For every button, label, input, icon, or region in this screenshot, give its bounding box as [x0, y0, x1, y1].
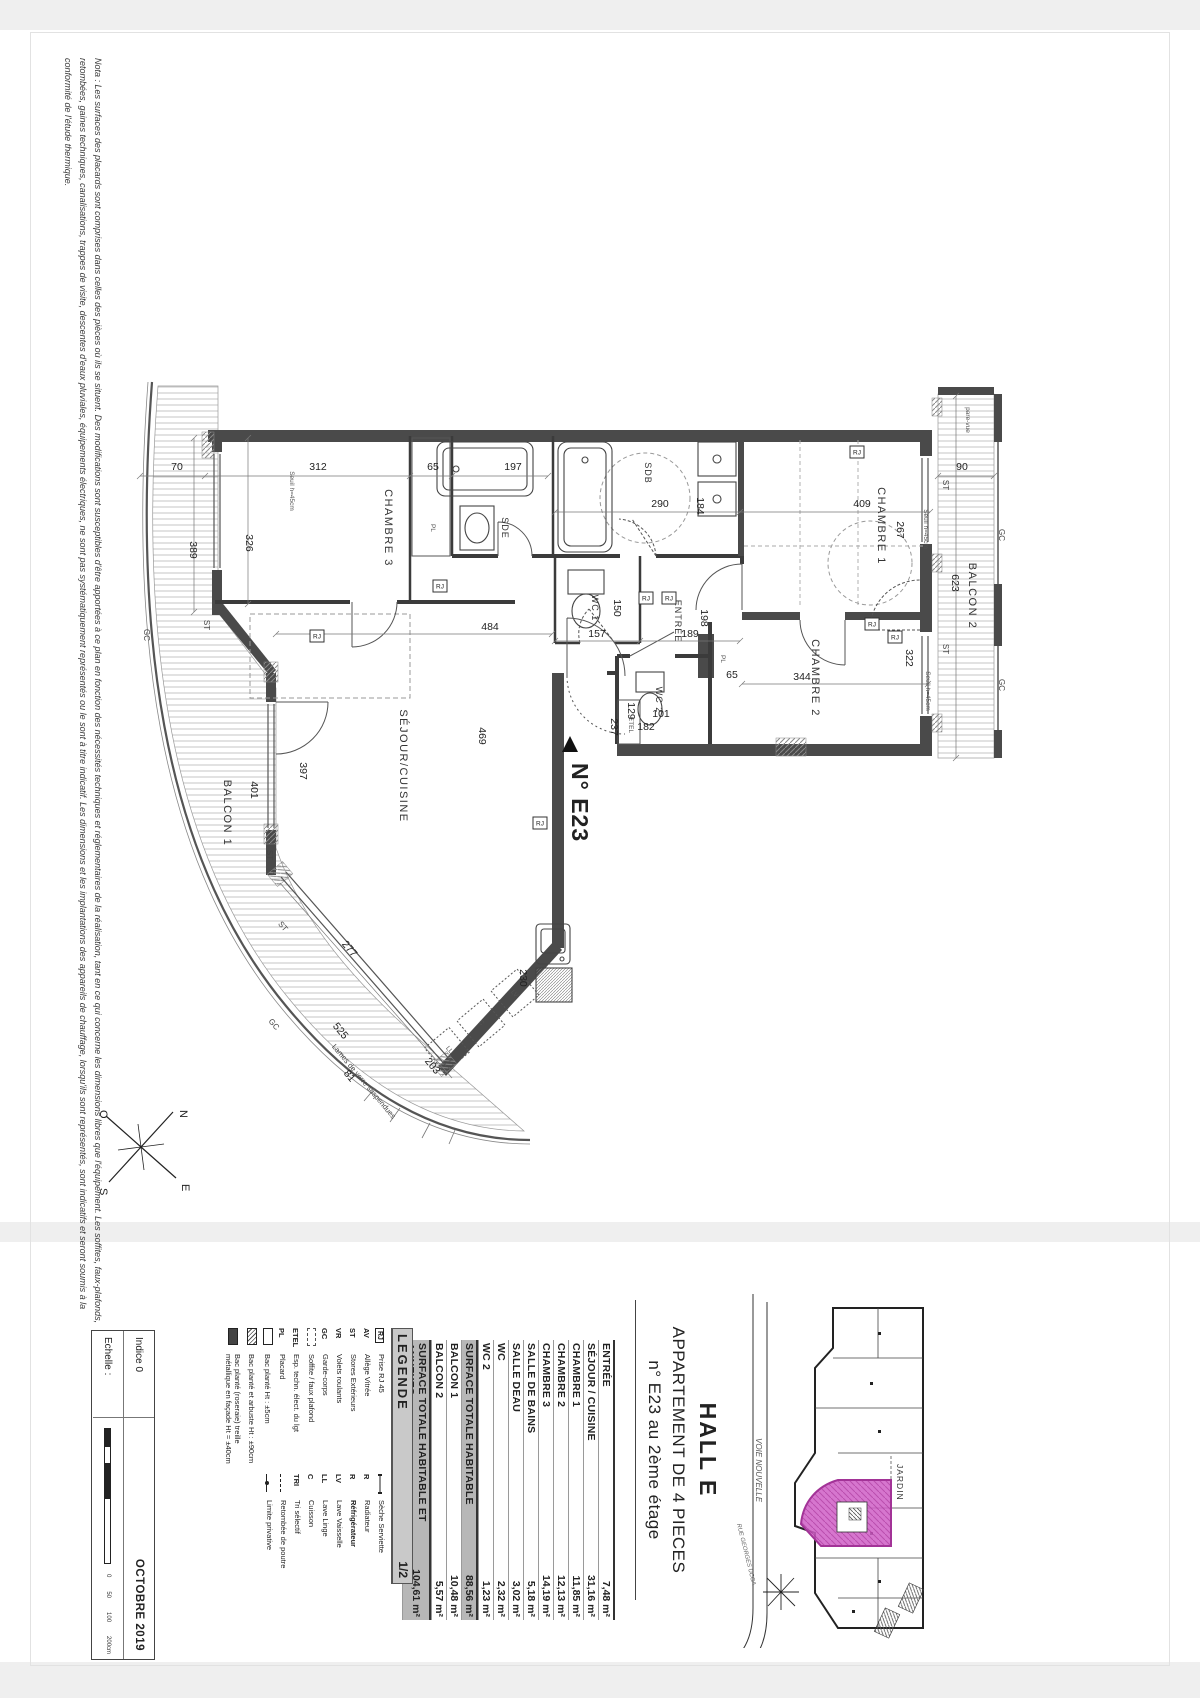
room-label: Seuil h=45cm	[924, 671, 931, 711]
legend-symbol: R	[349, 1474, 358, 1500]
scale-seg	[105, 1498, 112, 1564]
scale-label: Echelle :	[93, 1331, 123, 1418]
title-block: JARDIN VOIE NOUVELLE RUE GEORGES UCCA	[88, 1240, 933, 1660]
area-value: 11,85 m²	[570, 1576, 582, 1617]
legend-label: Tri sélectif	[293, 1500, 302, 1534]
room-label: Seuil h=45cm	[288, 471, 295, 511]
dimension-label: 157	[588, 628, 606, 640]
titles: HALL E APPARTEMENT DE 4 PIECES n° E23 au…	[635, 1240, 721, 1660]
area-value: 12,13 m²	[555, 1575, 567, 1617]
rj45-socket-label: RJ	[853, 450, 861, 457]
legend-symbol	[245, 1328, 257, 1354]
room-label: ST	[941, 480, 950, 490]
dimension-label: 469	[476, 727, 488, 745]
legend-item: Soffite / faux plafond	[305, 1328, 316, 1474]
room-label: SDE	[500, 517, 510, 539]
legend-symbol	[377, 1474, 386, 1500]
legend-symbol: AV	[363, 1328, 372, 1354]
dimension-label: 290	[651, 498, 669, 510]
legend-label: Allège Vitrée	[363, 1354, 372, 1396]
legend-symbol: C	[307, 1474, 316, 1500]
room-label: ENTRÉE	[673, 600, 683, 643]
area-value: 31,16 m²	[585, 1575, 597, 1617]
washbasin-1	[698, 442, 736, 476]
road-label: VOIE NOUVELLE	[754, 1438, 763, 1503]
bathtub-sdb	[558, 442, 612, 552]
dimension-label: 230	[517, 969, 529, 987]
scale-tick-label: 0	[105, 1574, 111, 1577]
room-label: SDB	[643, 462, 653, 484]
scale-tick-label: 200cm	[105, 1636, 111, 1654]
room-label: GC	[997, 529, 1006, 541]
legend-symbol	[279, 1474, 288, 1500]
legend-right-column: Sèche ServietteRRadiateurRRéfrigérateurL…	[220, 1474, 386, 1584]
legend-label: Bac planté Ht : ±5cm	[263, 1354, 272, 1424]
title-rule	[635, 1300, 636, 1600]
floor-plan: N° E23 703126519729040990389326184267623…	[100, 378, 1020, 1168]
room-label: ST	[265, 850, 274, 860]
legend-symbol	[305, 1328, 316, 1354]
legend-label: Bac planté (roseraie) treille métallique…	[224, 1354, 241, 1474]
kitchen-counter	[536, 968, 572, 1002]
compass-n: N	[177, 1110, 189, 1118]
nota-line: conformité de l'étude thermique.	[60, 58, 75, 1203]
legend-title: LEGENDE	[395, 1334, 410, 1411]
dimension-label: 389	[187, 541, 199, 559]
unit-e23-highlight	[801, 1480, 891, 1546]
room-label: CHAMBRE 1	[875, 487, 887, 565]
area-row: WC 21,23 m²	[478, 1340, 493, 1620]
dimension-label: 401	[248, 781, 260, 799]
area-row: SURFACE TOTALE HABITABLE88,56 m²	[461, 1340, 478, 1620]
dimension-label: 90	[956, 461, 968, 473]
scale-seg	[105, 1464, 112, 1498]
area-row: SALLE DEAU3,02 m²	[508, 1340, 523, 1620]
legend-symbol	[261, 1328, 273, 1354]
area-row: ENTRÉE7,48 m²	[598, 1340, 613, 1620]
legend-item: VRVolets roulants	[334, 1328, 344, 1474]
area-room-name: SALLE DEAU	[510, 1343, 522, 1412]
area-room-name: WC	[495, 1343, 507, 1361]
dimension-label: 409	[853, 498, 871, 510]
legend-item: LLLave Linge	[320, 1474, 330, 1584]
page-bottom-margin	[0, 1662, 1200, 1698]
legend-label: Esp. techn. élect. du lgt	[292, 1354, 301, 1432]
area-row: BALCON 25,57 m²	[431, 1340, 446, 1620]
legend-label: Sèche Serviette	[377, 1500, 386, 1553]
dimension-label: 237	[608, 718, 620, 736]
legend-item: STStores Extérieurs	[348, 1328, 358, 1474]
dimension-label: 277	[339, 939, 360, 960]
rj45-socket-label: RJ	[642, 596, 650, 603]
dimension-label: 326	[243, 534, 255, 552]
legend-item: Limite privative	[264, 1474, 274, 1584]
rj45-socket-label: RJ	[536, 821, 544, 828]
dimension-label: 267	[894, 521, 906, 539]
legend-label: Garde-corps	[321, 1354, 330, 1396]
legend-label: Radiateur	[363, 1500, 372, 1533]
closets-soffits	[250, 438, 926, 744]
unit-door-dots	[852, 1332, 881, 1613]
room-label: CHAMBRE 3	[382, 489, 394, 567]
legend-header: LEGENDE 1/2	[391, 1328, 413, 1584]
dimension-label: 65	[427, 461, 439, 473]
area-room-name: CHAMBRE 3	[540, 1343, 552, 1407]
legend-label: Réfrigérateur	[349, 1500, 358, 1547]
scale-seg	[105, 1428, 112, 1446]
legend-item: Bac planté Ht : ±5cm	[261, 1328, 273, 1474]
room-label: PL	[429, 524, 436, 532]
legend-item: Retombée de poutre	[278, 1474, 288, 1584]
dimension-label: 70	[171, 461, 183, 473]
room-label: Seuil h=45cm	[922, 509, 929, 549]
area-room-name: WC 2	[480, 1343, 492, 1370]
legend-symbol	[227, 1328, 239, 1354]
map-compass-icon	[763, 1574, 799, 1610]
dimension-label: 184	[694, 497, 706, 515]
building-units	[815, 1308, 923, 1628]
legend-symbol	[265, 1474, 274, 1500]
legend-item: RRéfrigérateur	[348, 1474, 358, 1584]
area-room-name: SÉJOUR / CUISINE	[585, 1343, 597, 1441]
legend-symbol: TRI	[293, 1474, 302, 1500]
legend-symbol: PL	[278, 1328, 287, 1354]
compass-s: S	[97, 1188, 109, 1195]
scale-tick-label: 100	[105, 1612, 111, 1622]
unit-entry-marker: N° E23	[562, 736, 593, 842]
area-room-name: SALLE DE BAINS	[525, 1343, 537, 1433]
legend-item: ETELEsp. techn. élect. du lgt	[291, 1328, 301, 1474]
dimension-label: 65	[726, 669, 738, 681]
rj45-socket-label: RJ	[665, 596, 673, 603]
area-value: 5,57 m²	[433, 1581, 445, 1617]
compass-e: E	[179, 1184, 191, 1191]
area-room-name: CHAMBRE 2	[555, 1343, 567, 1407]
legend-label: Soffite / faux plafond	[306, 1354, 315, 1422]
site-map: JARDIN VOIE NOUVELLE RUE GEORGES UCCA	[733, 1288, 933, 1648]
legend-label: Placard	[278, 1354, 287, 1379]
rj45-socket-label: RJ	[868, 622, 876, 629]
area-room-name: BALCON 2	[433, 1343, 445, 1398]
room-label: GC	[142, 629, 151, 641]
dimension-label: 397	[297, 762, 309, 780]
legend-item: RJPrise RJ 45	[376, 1328, 386, 1474]
rj45-socket-label: RJ	[891, 635, 899, 642]
area-room-name: ENTRÉE	[600, 1343, 612, 1387]
scale-seg	[105, 1446, 112, 1464]
dimension-label: 484	[481, 621, 499, 633]
area-row: CHAMBRE 212,13 m²	[553, 1340, 568, 1620]
area-value: 88,56 m²	[463, 1575, 475, 1617]
area-room-name: CHAMBRE 1	[570, 1343, 582, 1407]
footer-row-indice: Indice 0 OCTOBRE 2019	[123, 1331, 154, 1659]
legend-label: Lave Linge	[321, 1500, 330, 1537]
room-label: WC 2	[654, 687, 664, 714]
wc1-cistern	[568, 570, 604, 594]
area-value: 10,48 m²	[448, 1575, 460, 1617]
compass-rose: N O E S	[76, 1082, 206, 1212]
area-row: SALLE DE BAINS5,18 m²	[523, 1340, 538, 1620]
room-label: CHAMBRE 2	[809, 639, 821, 717]
area-value: 2,32 m²	[495, 1581, 507, 1617]
legend-label: Prise RJ 45	[377, 1354, 386, 1393]
nota-text: Nota : Les surfaces des placards sont co…	[57, 58, 105, 1203]
legend-symbol: RJ	[377, 1328, 386, 1354]
dimension-label: 198	[698, 609, 710, 627]
rj45-socket-label: RJ	[436, 584, 444, 591]
legend-label: Cuisson	[307, 1500, 316, 1527]
legend-item: AVAllège Vitrée	[362, 1328, 372, 1474]
scale-bar	[105, 1428, 112, 1564]
area-row: CHAMBRE 111,85 m²	[568, 1340, 583, 1620]
page-top-margin	[0, 0, 1200, 30]
legend-columns: RJPrise RJ 45AVAllège VitréeSTStores Ext…	[220, 1328, 386, 1584]
area-row: BALCON 110,48 m²	[446, 1340, 461, 1620]
legend-symbol: LL	[321, 1474, 330, 1500]
legend-label: Bac planté et arbuste Ht : ±90cm	[247, 1354, 256, 1463]
indice-label: Indice 0	[124, 1331, 154, 1418]
dimension-label: 344	[793, 671, 811, 683]
hall-title: HALL E	[694, 1240, 721, 1660]
legend-symbol: R	[363, 1474, 372, 1500]
legend-symbol: GC	[321, 1328, 330, 1354]
plan-sheet: { "note": { "line1": "Nota : Les surface…	[0, 0, 1200, 1698]
area-room-name: BALCON 1	[448, 1343, 460, 1398]
legend-label: Stores Extérieurs	[349, 1354, 358, 1412]
room-label: GC	[267, 1017, 282, 1032]
dimension-label: 322	[903, 649, 915, 667]
footer-row-echelle: Echelle : 050100200cm	[93, 1331, 123, 1659]
dimension-label: 312	[309, 461, 327, 473]
legend-label: Retombée de poutre	[279, 1500, 288, 1568]
dimension-label: 182	[637, 721, 655, 733]
legend-symbol: ST	[349, 1328, 358, 1354]
legend: LEGENDE 1/2 RJPrise RJ 45AVAllège Vitrée…	[220, 1328, 413, 1584]
wall-ch1-ch2	[742, 612, 800, 620]
area-row: WC2,32 m²	[493, 1340, 508, 1620]
area-value: 7,48 m²	[600, 1581, 612, 1617]
area-row: CHAMBRE 314,19 m²	[538, 1340, 553, 1620]
wall-ch1-ch2b	[845, 612, 928, 620]
dimension-label: 623	[949, 574, 961, 592]
nota-line: retombées, gaines techniques, canalisati…	[75, 58, 90, 1203]
legend-symbol: VR	[335, 1328, 344, 1354]
legend-item: GCGarde-corps	[320, 1328, 330, 1474]
room-label: BALCON 1	[221, 780, 233, 846]
dimension-label: 150	[611, 599, 623, 617]
legend-label: Volets roulants	[335, 1354, 344, 1403]
room-label: WC 1	[590, 595, 600, 622]
area-value: 3,02 m²	[510, 1581, 522, 1617]
legend-item: PLPlacard	[277, 1328, 287, 1474]
crosswalk	[874, 1583, 923, 1638]
apartment-type-title: APPARTEMENT DE 4 PIECES	[668, 1240, 688, 1660]
scale-ticks: 050100200cm	[105, 1574, 111, 1654]
room-label: SÉJOUR/CUISINE	[397, 709, 410, 822]
legend-item: CCuisson	[306, 1474, 316, 1584]
area-table: ENTRÉE7,48 m²SÉJOUR / CUISINE31,16 m²CHA…	[402, 1340, 615, 1620]
room-label: BALCON 2	[966, 563, 978, 629]
room-label: pare-vue	[964, 407, 971, 433]
fixtures	[437, 442, 736, 1002]
legend-item: LVLave Vaisselle	[334, 1474, 344, 1584]
rj45-socket-label: RJ	[313, 634, 321, 641]
dimension-label: 197	[504, 461, 522, 473]
legend-page-number: 1/2	[395, 1561, 410, 1578]
legend-symbol: LV	[335, 1474, 344, 1500]
legend-item: TRITri sélectif	[292, 1474, 302, 1584]
area-value: 5,18 m²	[525, 1581, 537, 1617]
room-label: ST	[202, 620, 211, 630]
area-room-name: SURFACE TOTALE HABITABLE	[463, 1343, 475, 1505]
legend-symbol: ETEL	[292, 1328, 301, 1354]
legend-item: Bac planté et arbuste Ht : ±90cm	[245, 1328, 257, 1474]
legend-item: RRadiateur	[362, 1474, 372, 1584]
legend-label: Limite privative	[265, 1500, 274, 1550]
legend-item: Bac planté (roseraie) treille métallique…	[224, 1328, 241, 1474]
area-row: SÉJOUR / CUISINE31,16 m²	[583, 1340, 598, 1620]
garden-label: JARDIN	[895, 1464, 905, 1501]
title-block-footer: Indice 0 OCTOBRE 2019 Echelle : 05010020…	[91, 1330, 155, 1660]
area-value: 1,23 m²	[480, 1581, 492, 1617]
room-label: PL	[719, 655, 726, 663]
room-label: ST	[941, 644, 950, 654]
date-label: OCTOBRE 2019	[133, 1559, 145, 1659]
unit-title: n° E23 au 2ème étage	[644, 1240, 664, 1660]
room-label: ETEL	[627, 717, 634, 734]
legend-item: Sèche Serviette	[376, 1474, 386, 1584]
compass-o: O	[97, 1110, 109, 1119]
area-value: 14,19 m²	[540, 1575, 552, 1617]
room-label: GC	[997, 679, 1006, 691]
scale-tick-label: 50	[105, 1591, 111, 1598]
unit-number-label: N° E23	[567, 763, 593, 842]
legend-left-column: RJPrise RJ 45AVAllège VitréeSTStores Ext…	[220, 1328, 386, 1474]
legend-label: Lave Vaisselle	[335, 1500, 344, 1548]
